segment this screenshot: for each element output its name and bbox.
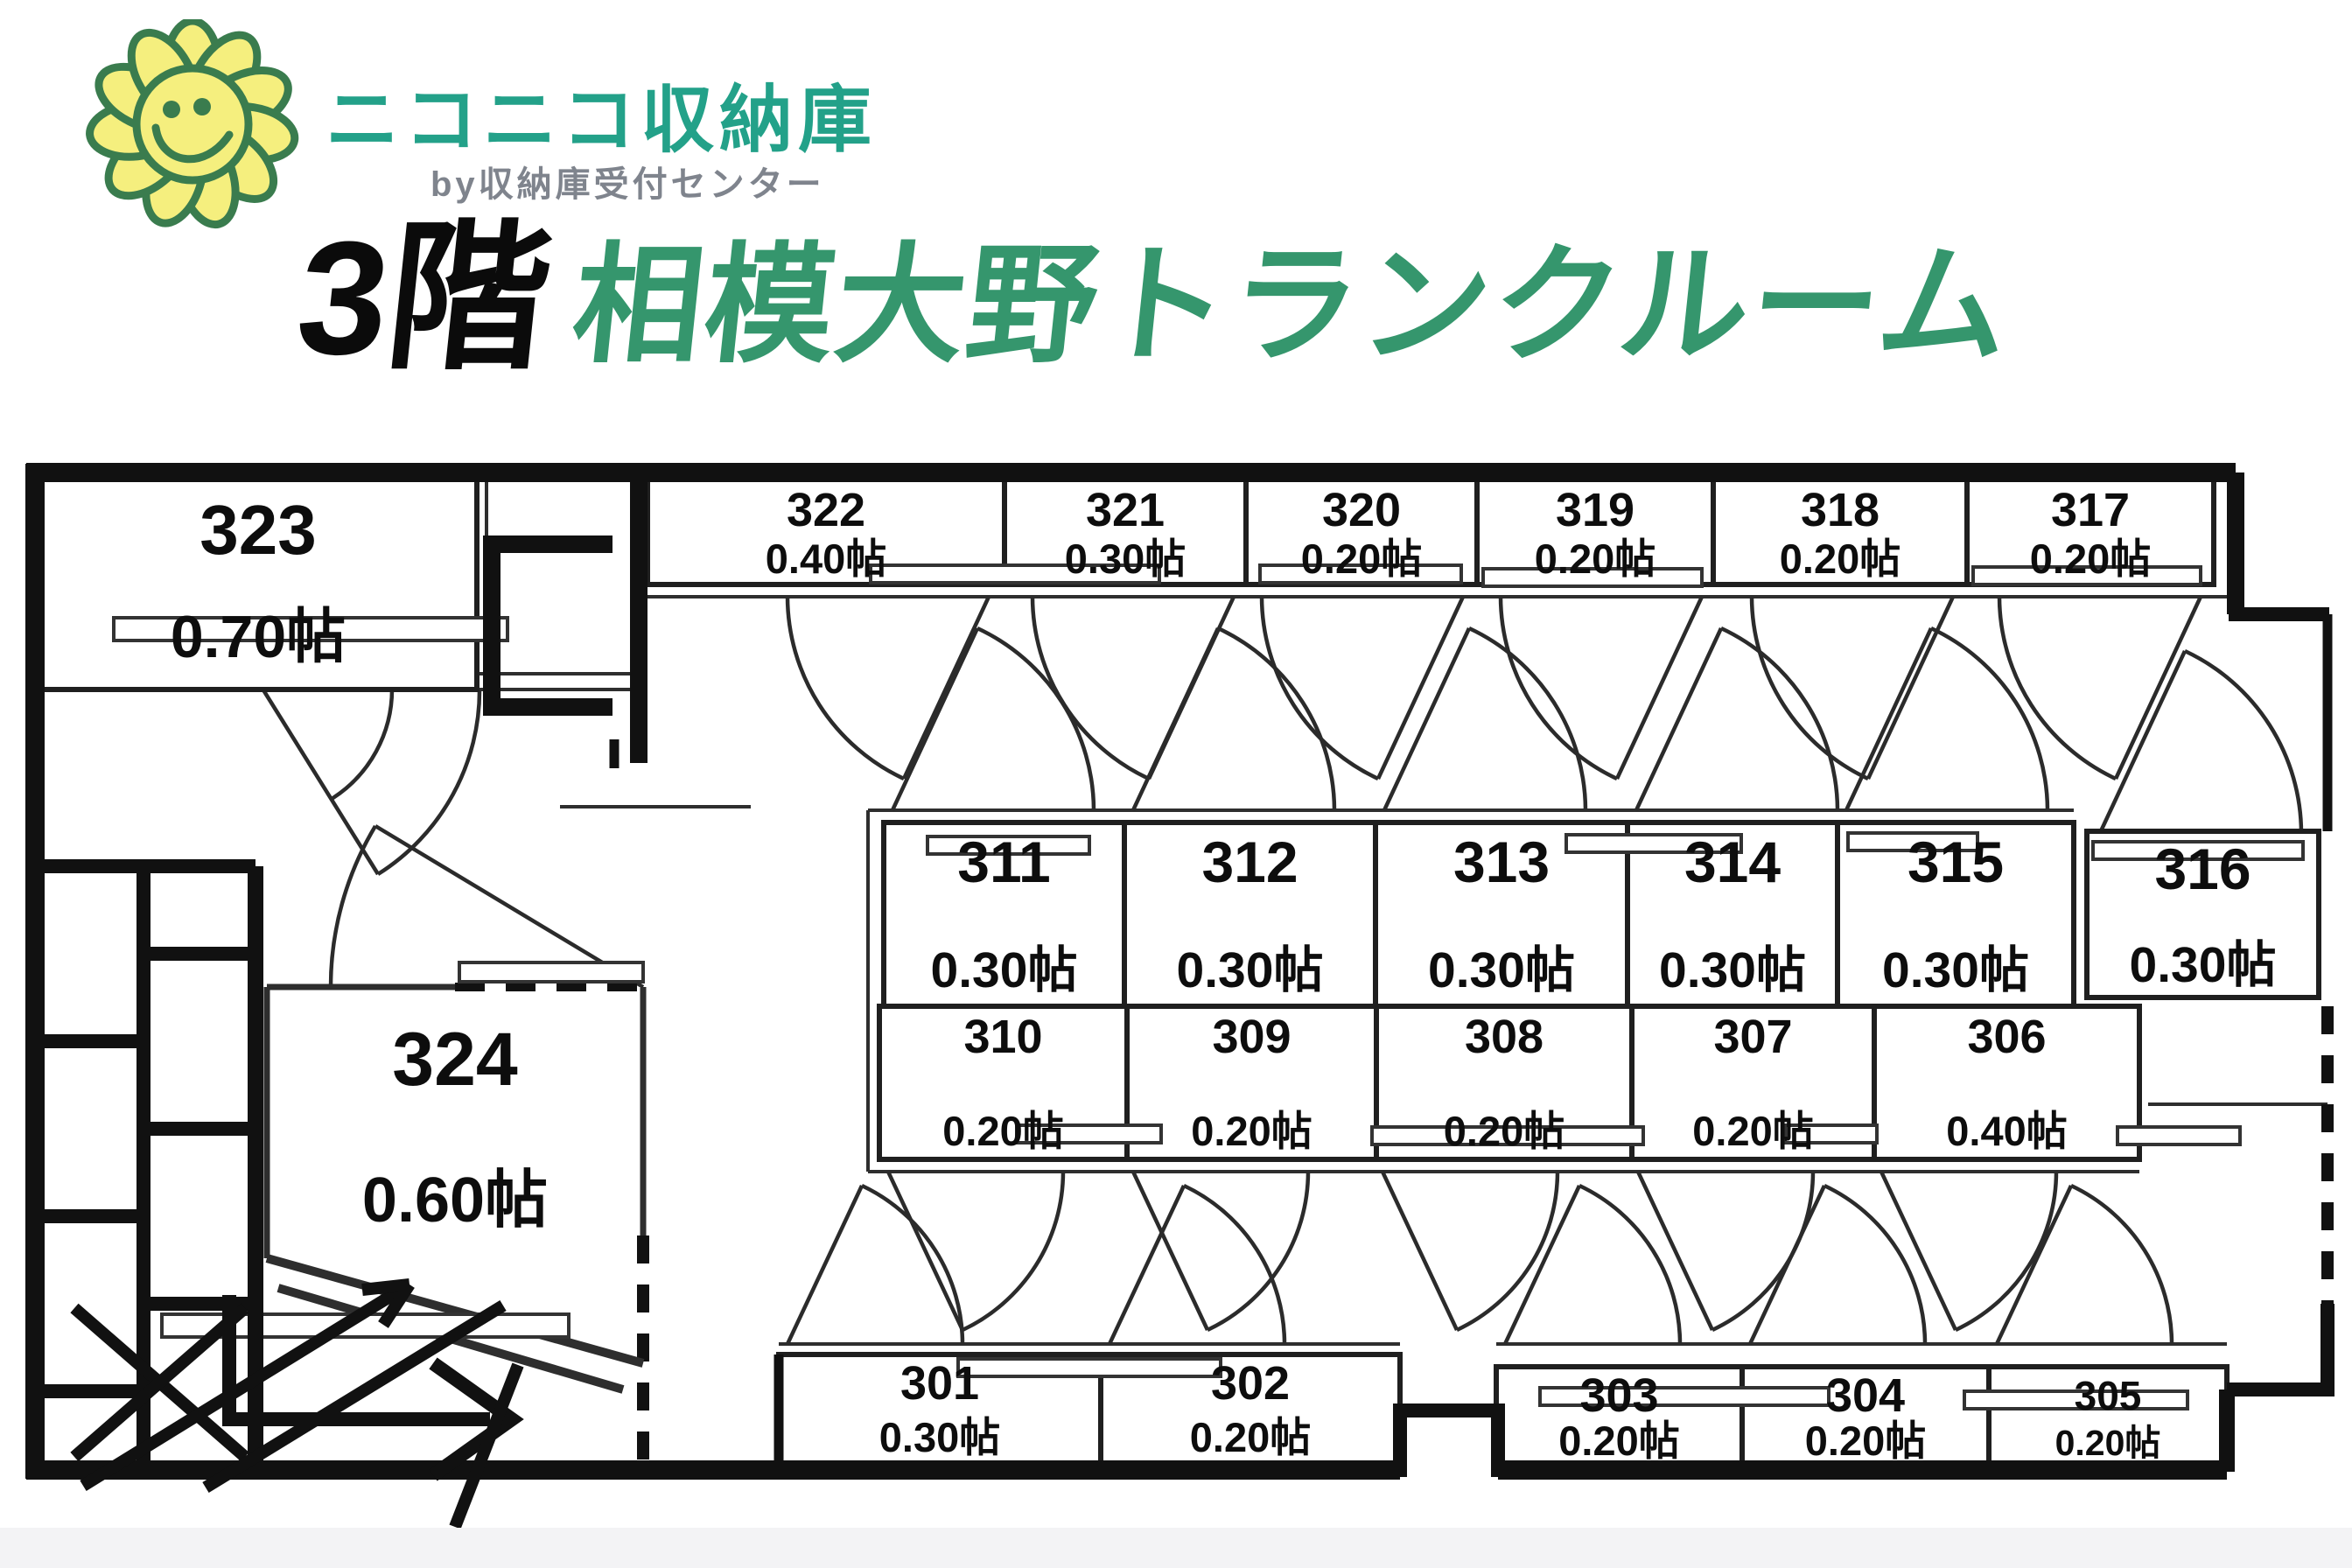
room-size: 0.70帖: [171, 607, 346, 667]
room-size: 0.20帖: [1444, 1110, 1564, 1151]
room-number: 308: [1465, 1013, 1543, 1060]
room-size: 0.20帖: [1191, 1110, 1312, 1151]
room-size: 0.30帖: [1177, 946, 1324, 996]
room-size: 0.20帖: [1535, 538, 1655, 579]
room-size: 0.20帖: [942, 1110, 1063, 1151]
floor-plan: [0, 0, 2352, 1568]
room-size: 0.20帖: [2030, 538, 2151, 579]
room-size: 0.20帖: [1805, 1420, 1926, 1461]
room-number: 303: [1579, 1372, 1658, 1419]
room-number: 310: [963, 1013, 1042, 1060]
room-number: 305: [2075, 1375, 2142, 1416]
room-number: 314: [1684, 833, 1781, 891]
room-number: 324: [392, 1022, 518, 1097]
room-311: 3110.30帖: [884, 833, 1124, 996]
room-number: 320: [1322, 486, 1401, 534]
room-301: 3010.30帖: [779, 1360, 1101, 1458]
room-size: 0.30帖: [1428, 946, 1575, 996]
room-304: 3040.20帖: [1742, 1372, 1989, 1461]
room-size: 0.20帖: [1692, 1110, 1813, 1151]
room-size: 0.20帖: [1190, 1417, 1311, 1458]
room-size: 0.30帖: [879, 1417, 1000, 1458]
room-size: 0.30帖: [2130, 941, 2277, 990]
room-number: 315: [1907, 833, 2004, 891]
room-size: 0.30帖: [1659, 946, 1806, 996]
room-number: 313: [1453, 833, 1550, 891]
room-size: 0.20帖: [2055, 1425, 2161, 1461]
room-319: 3190.20帖: [1477, 486, 1713, 579]
room-size: 0.40帖: [766, 538, 886, 579]
room-315: 3150.30帖: [1837, 833, 2074, 996]
room-306: 3060.40帖: [1874, 1013, 2139, 1151]
room-313: 3130.30帖: [1375, 833, 1627, 996]
room-size: 0.40帖: [1946, 1110, 2067, 1151]
room-320: 3200.20帖: [1246, 486, 1477, 579]
room-303: 3030.20帖: [1496, 1372, 1742, 1461]
room-302: 3020.20帖: [1101, 1360, 1400, 1458]
room-size: 0.20帖: [1780, 538, 1900, 579]
room-size: 0.60帖: [362, 1169, 548, 1232]
room-316: 3160.30帖: [2087, 840, 2319, 990]
room-number: 304: [1826, 1372, 1905, 1419]
room-number: 302: [1211, 1360, 1290, 1407]
room-308: 3080.20帖: [1376, 1013, 1632, 1151]
room-310: 3100.20帖: [879, 1013, 1127, 1151]
room-number: 306: [1967, 1013, 2046, 1060]
room-number: 322: [787, 486, 865, 534]
room-number: 301: [900, 1360, 979, 1407]
page: ニコニコ収納庫 by収納庫受付センター 3階 相模大野トランクルーム: [0, 0, 2352, 1568]
room-number: 307: [1713, 1013, 1792, 1060]
room-number: 317: [2051, 486, 2130, 534]
room-size: 0.30帖: [1065, 538, 1186, 579]
room-312: 3120.30帖: [1124, 833, 1375, 996]
room-305: 3050.20帖: [1989, 1375, 2227, 1461]
room-size: 0.20帖: [1301, 538, 1422, 579]
room-number: 309: [1212, 1013, 1291, 1060]
room-number: 319: [1556, 486, 1634, 534]
room-323: 3230.70帖: [48, 495, 468, 667]
room-314: 3140.30帖: [1627, 833, 1837, 996]
room-309: 3090.20帖: [1127, 1013, 1376, 1151]
room-324: 3240.60帖: [280, 1022, 630, 1232]
room-321: 3210.30帖: [1004, 486, 1246, 579]
room-size: 0.30帖: [1882, 946, 2029, 996]
room-number: 323: [199, 495, 316, 565]
room-317: 3170.20帖: [1967, 486, 2214, 579]
room-size: 0.30帖: [931, 946, 1078, 996]
room-number: 311: [957, 833, 1050, 891]
room-number: 321: [1086, 486, 1165, 534]
room-number: 316: [2154, 840, 2250, 898]
room-322: 3220.40帖: [647, 486, 1004, 579]
room-size: 0.20帖: [1558, 1420, 1679, 1461]
room-number: 318: [1801, 486, 1879, 534]
footer-strip: [0, 1528, 2352, 1568]
room-318: 3180.20帖: [1713, 486, 1967, 579]
room-number: 312: [1201, 833, 1298, 891]
room-307: 3070.20帖: [1632, 1013, 1874, 1151]
